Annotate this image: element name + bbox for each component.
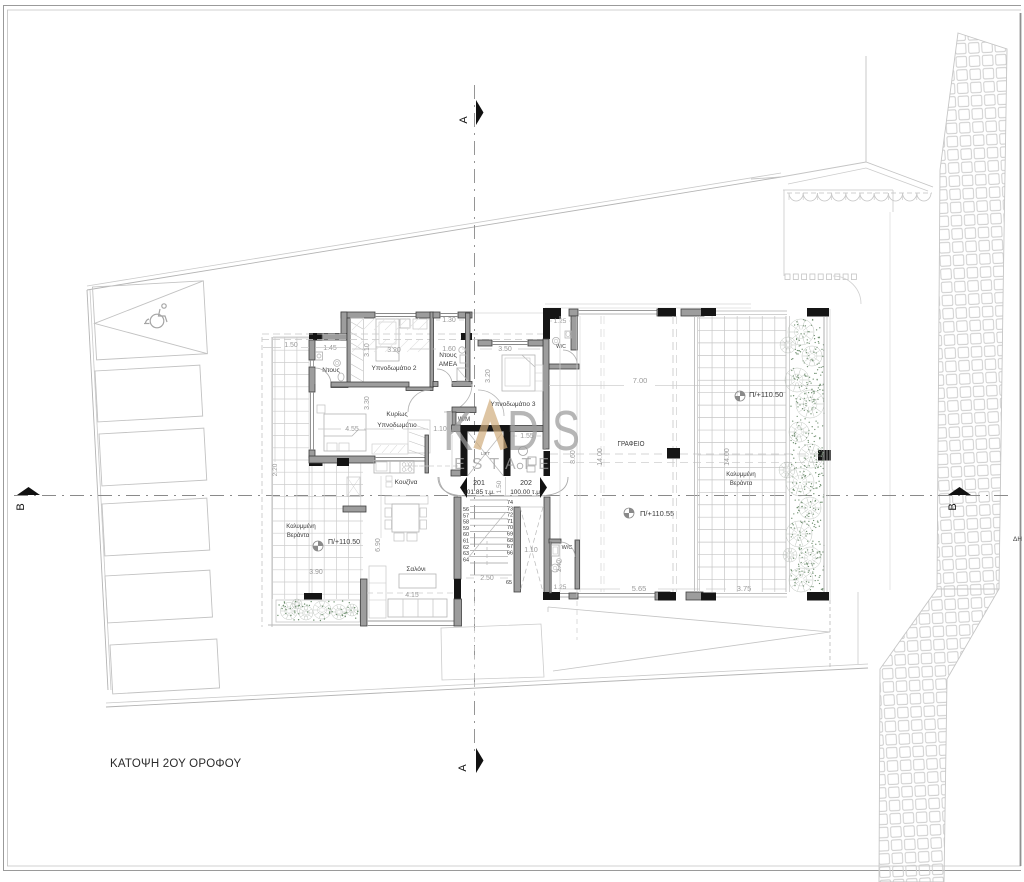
svg-text:100.00 τ.μ.: 100.00 τ.μ. <box>510 489 542 496</box>
svg-text:1.50: 1.50 <box>496 480 503 493</box>
svg-text:3.30: 3.30 <box>364 396 371 410</box>
svg-text:58: 58 <box>463 520 469 526</box>
svg-text:1.10: 1.10 <box>524 547 538 554</box>
svg-text:A: A <box>457 764 469 772</box>
svg-text:2.20: 2.20 <box>272 463 279 476</box>
svg-text:2.50: 2.50 <box>480 575 494 582</box>
svg-text:71: 71 <box>507 519 513 525</box>
svg-text:1.50: 1.50 <box>284 342 298 349</box>
svg-text:ΔΗ: ΔΗ <box>1013 536 1022 543</box>
svg-text:Π/+110.55: Π/+110.55 <box>640 509 674 518</box>
svg-text:Σαλόνι: Σαλόνι <box>406 565 426 573</box>
svg-text:Ντους: Ντους <box>322 367 339 374</box>
svg-text:57: 57 <box>463 513 469 519</box>
svg-text:3.90: 3.90 <box>309 569 323 576</box>
svg-text:Υπνοδωμάτιο 2: Υπνοδωμάτιο 2 <box>372 364 417 372</box>
svg-text:Ντους: Ντους <box>439 352 456 359</box>
svg-text:7.00: 7.00 <box>633 376 648 385</box>
svg-text:56: 56 <box>463 507 469 513</box>
svg-text:70: 70 <box>507 525 513 531</box>
svg-text:6.90: 6.90 <box>375 538 382 552</box>
svg-text:68: 68 <box>507 538 513 544</box>
svg-text:73: 73 <box>507 506 513 512</box>
svg-text:72: 72 <box>507 513 513 519</box>
svg-text:1.45: 1.45 <box>323 345 337 352</box>
svg-text:Κυρίως: Κυρίως <box>386 410 407 418</box>
svg-text:Π/+110.50: Π/+110.50 <box>749 390 783 399</box>
svg-text:201: 201 <box>473 480 485 487</box>
svg-text:S: S <box>552 399 580 463</box>
svg-text:ESTATE: ESTATE <box>454 456 556 473</box>
svg-text:59: 59 <box>463 526 469 532</box>
svg-text:4.55: 4.55 <box>345 426 359 433</box>
svg-text:I: I <box>541 399 548 463</box>
svg-text:65: 65 <box>506 580 512 586</box>
svg-text:60: 60 <box>463 532 469 538</box>
svg-text:1.30: 1.30 <box>442 317 456 324</box>
svg-text:B: B <box>15 503 27 510</box>
svg-text:14.00: 14.00 <box>597 448 604 466</box>
svg-text:A: A <box>458 116 470 124</box>
svg-text:14.00: 14.00 <box>724 448 731 466</box>
svg-text:B: B <box>947 503 959 510</box>
svg-text:3.50: 3.50 <box>498 346 512 353</box>
svg-text:D: D <box>507 399 539 463</box>
svg-text:Υπνοδωμάτιο: Υπνοδωμάτιο <box>377 421 417 429</box>
svg-text:74: 74 <box>507 500 513 506</box>
svg-text:W/C: W/C <box>562 545 573 551</box>
svg-text:4.15: 4.15 <box>405 592 419 599</box>
svg-text:K: K <box>443 399 473 463</box>
svg-text:1.25: 1.25 <box>554 584 567 591</box>
svg-text:69: 69 <box>507 532 513 538</box>
svg-text:3.75: 3.75 <box>737 584 752 593</box>
svg-text:3.20: 3.20 <box>387 347 401 354</box>
svg-text:5.65: 5.65 <box>632 584 647 593</box>
svg-text:Καλυμμένη: Καλυμμένη <box>286 523 315 530</box>
svg-text:1.60: 1.60 <box>442 346 456 353</box>
svg-text:Καλυμμένη: Καλυμμένη <box>726 471 755 478</box>
svg-text:202: 202 <box>520 480 532 487</box>
svg-text:64: 64 <box>463 557 469 563</box>
svg-text:61: 61 <box>463 539 469 545</box>
svg-text:W/C: W/C <box>556 344 566 350</box>
svg-text:ΓΡΑΦΕΙΟ: ΓΡΑΦΕΙΟ <box>618 441 645 448</box>
svg-text:Π/+110.50: Π/+110.50 <box>328 539 360 546</box>
svg-text:Βεράντα: Βεράντα <box>287 532 310 539</box>
svg-text:ΑΜΕΑ: ΑΜΕΑ <box>439 361 458 368</box>
svg-text:2.40: 2.40 <box>557 560 563 572</box>
svg-text:67: 67 <box>507 544 513 550</box>
svg-text:3.10: 3.10 <box>364 343 371 357</box>
svg-text:Βεράντα: Βεράντα <box>730 480 753 487</box>
svg-text:3.20: 3.20 <box>485 369 492 383</box>
svg-text:62: 62 <box>463 545 469 551</box>
svg-text:Κουζίνα: Κουζίνα <box>395 478 418 486</box>
svg-text:63: 63 <box>463 551 469 557</box>
svg-text:ΚΑΤΟΨΗ 2ΟΥ ΟΡΟΦΟΥ: ΚΑΤΟΨΗ 2ΟΥ ΟΡΟΦΟΥ <box>110 758 241 770</box>
svg-text:101.85 τ.μ.: 101.85 τ.μ. <box>463 489 495 496</box>
svg-text:66: 66 <box>507 550 513 556</box>
